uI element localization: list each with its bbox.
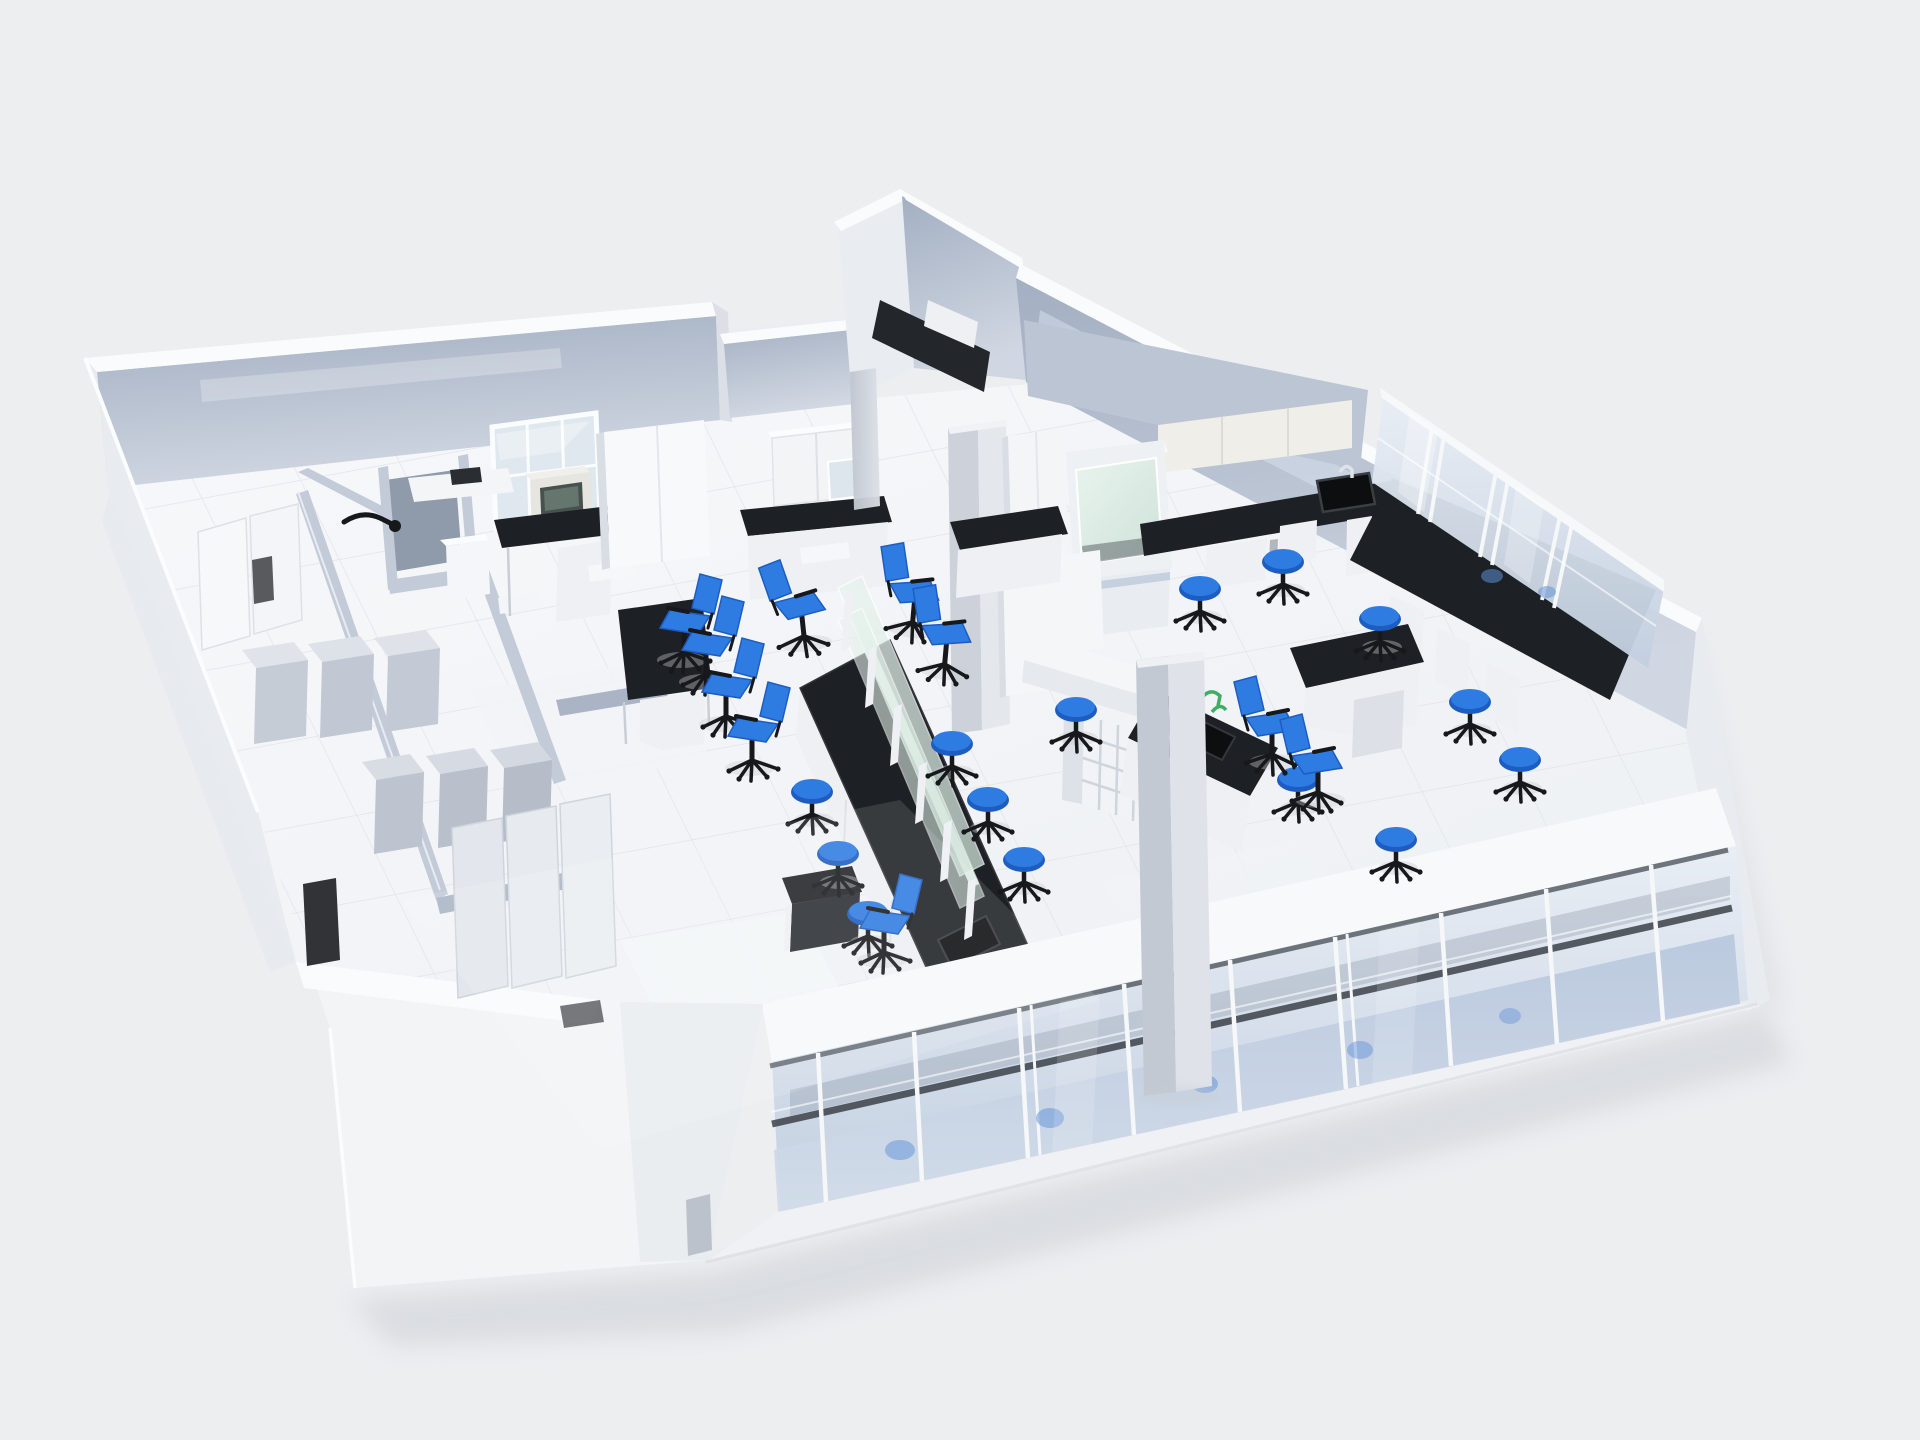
- side-return-cabinet: [446, 540, 490, 600]
- isometric-lab-scene: [0, 0, 1920, 1440]
- facade-joint-slot: [686, 1194, 712, 1256]
- tall-metal-panel: [850, 368, 880, 510]
- laptop: [450, 467, 482, 485]
- door: [198, 518, 250, 650]
- counter-upper-arm: [1056, 550, 1104, 654]
- lab-floorplan-render: Laboratory 3D floor plan: [0, 0, 1920, 1440]
- corridor-wall-face: [724, 330, 854, 418]
- dark-floor-recess: [303, 878, 340, 966]
- tall-cabinet: [596, 420, 710, 570]
- reagent-bottles: [1481, 569, 1503, 583]
- storage-cabinet-row-1: [242, 630, 440, 744]
